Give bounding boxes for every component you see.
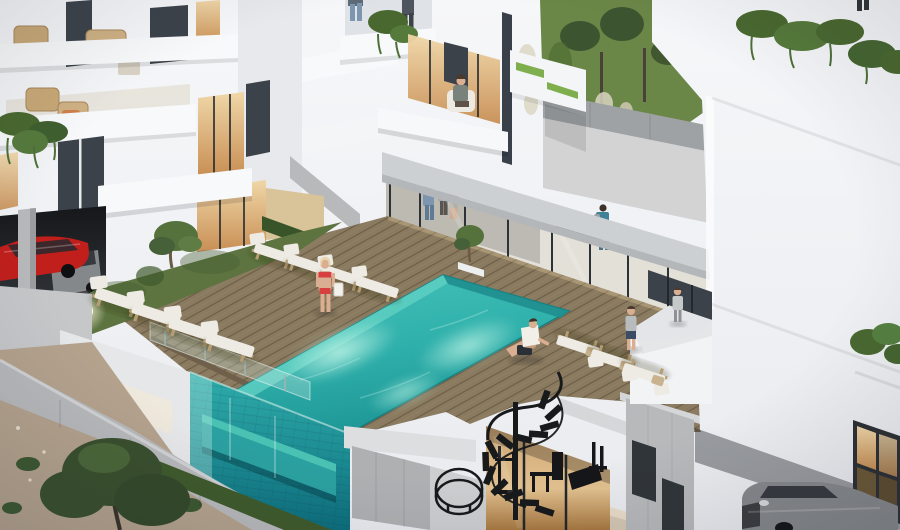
- architectural-render: [0, 0, 900, 530]
- vignette-overlay: [0, 0, 900, 530]
- render-viewport: [0, 0, 900, 530]
